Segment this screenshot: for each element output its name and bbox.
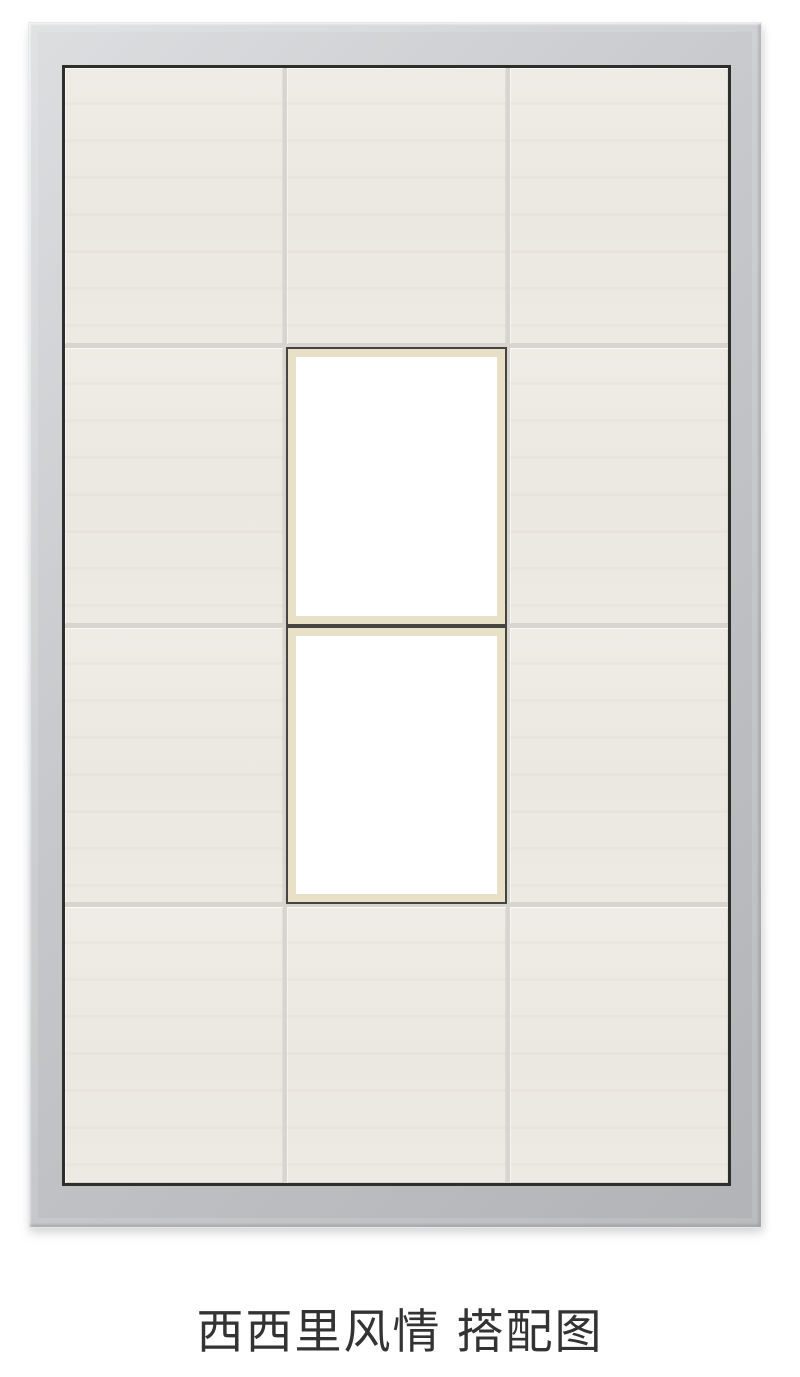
ceramic-tile — [510, 348, 728, 624]
tile-panel — [62, 65, 731, 1186]
ceramic-tile — [287, 907, 505, 1183]
caption-title: 西西里风情 搭配图 — [0, 1306, 800, 1358]
ceramic-tile — [510, 68, 728, 344]
ceramic-tile — [287, 68, 505, 344]
ceramic-tile — [65, 348, 283, 624]
ceramic-tile — [65, 628, 283, 904]
feature-tile-inset — [296, 357, 497, 616]
ceramic-tile — [510, 907, 728, 1183]
feature-tile-inset — [296, 636, 497, 895]
ceramic-tile — [65, 68, 283, 344]
metal-display-frame — [28, 22, 762, 1228]
product-display-image: 西西里风情 搭配图 — [0, 0, 800, 1377]
feature-tile-column — [286, 347, 507, 905]
ceramic-tile — [65, 907, 283, 1183]
feature-tile — [286, 347, 507, 626]
ceramic-tile — [510, 628, 728, 904]
feature-tile — [286, 626, 507, 905]
